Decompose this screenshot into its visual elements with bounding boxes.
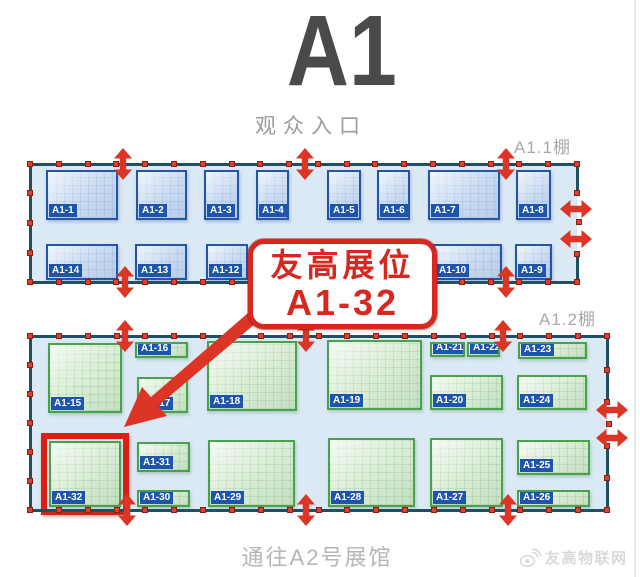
booth-tag: A1-19 [330, 394, 363, 407]
photo-edge-line [634, 0, 636, 577]
booth-a1-29: A1-29 [208, 440, 295, 507]
resize-handle [56, 161, 62, 167]
resize-handle [401, 161, 407, 167]
resize-handle [27, 333, 33, 339]
resize-handle [85, 507, 91, 513]
resize-handle [402, 333, 408, 339]
floorplan-image: A1 观众入口 A1.1棚 A1.2棚 A1-1A1-2A1-3A1-4A1-5… [0, 0, 640, 577]
resize-handle [431, 507, 437, 513]
hall2-shed-label: A1.2棚 [539, 305, 596, 330]
resize-handle [344, 161, 350, 167]
booth-a1-14: A1-14 [46, 244, 118, 280]
resize-handle [459, 161, 465, 167]
resize-handle [200, 279, 206, 285]
resize-handle [545, 161, 551, 167]
booth-tag: A1-21 [433, 342, 465, 354]
booth-a1-23: A1-23 [518, 342, 587, 359]
resize-handle [200, 333, 206, 339]
resize-handle [489, 507, 495, 513]
booth-a1-27: A1-27 [430, 438, 503, 507]
resize-handle [576, 219, 582, 225]
resize-handle [258, 333, 264, 339]
resize-handle [142, 161, 148, 167]
booth-tag: A1-1 [49, 204, 77, 217]
resize-handle [27, 250, 33, 256]
resize-handle [56, 333, 62, 339]
aisle-arrow-vertical [115, 320, 135, 352]
resize-handle [604, 367, 610, 373]
highlight-ring [41, 433, 129, 515]
booth-a1-24: A1-24 [517, 375, 587, 410]
resize-handle [200, 161, 206, 167]
resize-handle [286, 161, 292, 167]
entrance-arrow-horizontal [596, 400, 628, 420]
resize-handle [56, 279, 62, 285]
resize-handle [574, 279, 580, 285]
resize-handle [229, 507, 235, 513]
aisle-arrow-vertical [496, 266, 516, 298]
resize-handle [257, 161, 263, 167]
resize-handle [27, 190, 33, 196]
booth-a1-18: A1-18 [207, 341, 297, 411]
resize-handle [460, 507, 466, 513]
booth-tag: A1-5 [330, 204, 358, 217]
weibo-icon [519, 548, 541, 568]
resize-handle [27, 391, 33, 397]
resize-handle [142, 507, 148, 513]
booth-a1-30: A1-30 [137, 490, 190, 507]
aisle-arrow-vertical [296, 494, 316, 526]
resize-handle [344, 507, 350, 513]
page-title: A1 [48, 0, 598, 102]
resize-handle [373, 333, 379, 339]
resize-handle [85, 161, 91, 167]
entrance-arrow-horizontal [560, 199, 592, 219]
resize-handle [431, 333, 437, 339]
resize-handle [546, 507, 552, 513]
aisle-arrow-vertical [493, 320, 513, 352]
resize-handle [171, 161, 177, 167]
booth-a1-6: A1-6 [377, 170, 410, 220]
booth-tag: A1-12 [209, 264, 242, 277]
resize-handle [517, 333, 523, 339]
resize-handle [258, 507, 264, 513]
booth-tag: A1-14 [49, 264, 82, 277]
resize-handle [604, 333, 610, 339]
aisle-arrow-vertical [496, 148, 516, 180]
booth-a1-8: A1-8 [516, 170, 551, 220]
booth-tag: A1-17 [140, 397, 173, 410]
resize-handle [85, 279, 91, 285]
aisle-arrow-vertical [115, 266, 135, 298]
booth-a1-31: A1-31 [137, 442, 190, 472]
hall1-shed-label: A1.1棚 [514, 133, 571, 158]
booth-tag: A1-18 [210, 395, 243, 408]
booth-tag: A1-4 [259, 204, 287, 217]
resize-handle [517, 507, 523, 513]
booth-a1-17: A1-17 [137, 377, 188, 413]
resize-handle [402, 507, 408, 513]
booth-a1-10: A1-10 [433, 244, 502, 280]
resize-handle [516, 161, 522, 167]
resize-handle [27, 362, 33, 368]
aisle-arrow-vertical [498, 494, 518, 526]
booth-tag: A1-8 [519, 204, 547, 217]
resize-handle [171, 279, 177, 285]
booth-tag: A1-28 [331, 491, 364, 504]
booth-tag: A1-15 [51, 397, 84, 410]
booth-a1-21: A1-21 [430, 342, 465, 357]
resize-handle [606, 421, 612, 427]
resize-handle [287, 507, 293, 513]
resize-handle [171, 333, 177, 339]
booth-tag: A1-25 [520, 459, 553, 472]
resize-handle [316, 507, 322, 513]
resize-handle [574, 251, 580, 257]
resize-handle [171, 507, 177, 513]
resize-handle [229, 333, 235, 339]
booth-a1-28: A1-28 [328, 438, 415, 507]
resize-handle [27, 478, 33, 484]
resize-handle [488, 279, 494, 285]
booth-a1-20: A1-20 [430, 375, 503, 410]
resize-handle [56, 507, 62, 513]
resize-handle [430, 161, 436, 167]
booth-tag: A1-6 [380, 204, 408, 217]
resize-handle [200, 507, 206, 513]
booth-tag: A1-31 [140, 456, 173, 469]
resize-handle [574, 161, 580, 167]
booth-a1-7: A1-7 [428, 170, 500, 220]
booth-a1-15: A1-15 [48, 343, 122, 413]
resize-handle [575, 507, 581, 513]
booth-a1-1: A1-1 [46, 170, 118, 220]
resize-handle [545, 279, 551, 285]
resize-handle [316, 333, 322, 339]
resize-handle [27, 420, 33, 426]
booth-a1-5: A1-5 [327, 170, 361, 220]
resize-handle [604, 475, 610, 481]
entrance-arrow-horizontal [596, 428, 628, 448]
resize-handle [546, 333, 552, 339]
booth-a1-4: A1-4 [256, 170, 289, 220]
booth-a1-9: A1-9 [515, 244, 552, 280]
watermark: 友高物联网 [519, 547, 628, 568]
resize-handle [459, 279, 465, 285]
resize-handle [142, 333, 148, 339]
resize-handle [604, 507, 610, 513]
aisle-arrow-vertical [113, 148, 133, 180]
resize-handle [229, 279, 235, 285]
booth-tag: A1-30 [140, 491, 173, 504]
watermark-text: 友高物联网 [545, 547, 628, 568]
resize-handle [142, 279, 148, 285]
booth-a1-26: A1-26 [517, 490, 590, 507]
resize-handle [315, 161, 321, 167]
booth-tag: A1-10 [436, 264, 469, 277]
booth-a1-25: A1-25 [517, 440, 590, 475]
resize-handle [27, 161, 33, 167]
aisle-arrow-vertical [295, 148, 315, 180]
booth-a1-16: A1-16 [135, 342, 188, 358]
booth-tag: A1-23 [521, 343, 554, 356]
booth-a1-12: A1-12 [206, 244, 248, 280]
resize-handle [85, 333, 91, 339]
resize-handle [372, 161, 378, 167]
booth-tag: A1-13 [138, 264, 171, 277]
resize-handle [373, 507, 379, 513]
booth-a1-19: A1-19 [327, 340, 422, 410]
resize-handle [344, 333, 350, 339]
aisle-arrow-vertical [117, 494, 137, 526]
resize-handle [488, 161, 494, 167]
booth-tag: A1-9 [518, 264, 546, 277]
callout-line2: A1-32 [286, 284, 399, 322]
booth-tag: A1-20 [433, 394, 466, 407]
resize-handle [27, 279, 33, 285]
booth-a1-3: A1-3 [204, 170, 239, 220]
booth-tag: A1-29 [211, 491, 244, 504]
resize-handle [575, 333, 581, 339]
booth-a1-2: A1-2 [136, 170, 187, 220]
resize-handle [287, 333, 293, 339]
resize-handle [27, 507, 33, 513]
booth-tag: A1-24 [520, 394, 553, 407]
booth-tag: A1-7 [431, 204, 459, 217]
resize-handle [229, 161, 235, 167]
booth-tag: A1-16 [138, 342, 171, 355]
callout-line1: 友高展位 [270, 246, 414, 284]
resize-handle [460, 333, 466, 339]
booth-tag: A1-27 [433, 491, 466, 504]
booth-tag: A1-2 [139, 204, 167, 217]
entrance-arrow-horizontal [560, 229, 592, 249]
resize-handle [516, 279, 522, 285]
resize-handle [27, 449, 33, 455]
booth-tag: A1-26 [520, 491, 553, 504]
booth-a1-13: A1-13 [135, 244, 187, 280]
resize-handle [574, 190, 580, 196]
resize-handle [27, 220, 33, 226]
booth-tag: A1-3 [207, 204, 235, 217]
booth-callout: 友高展位 A1-32 [248, 239, 437, 329]
